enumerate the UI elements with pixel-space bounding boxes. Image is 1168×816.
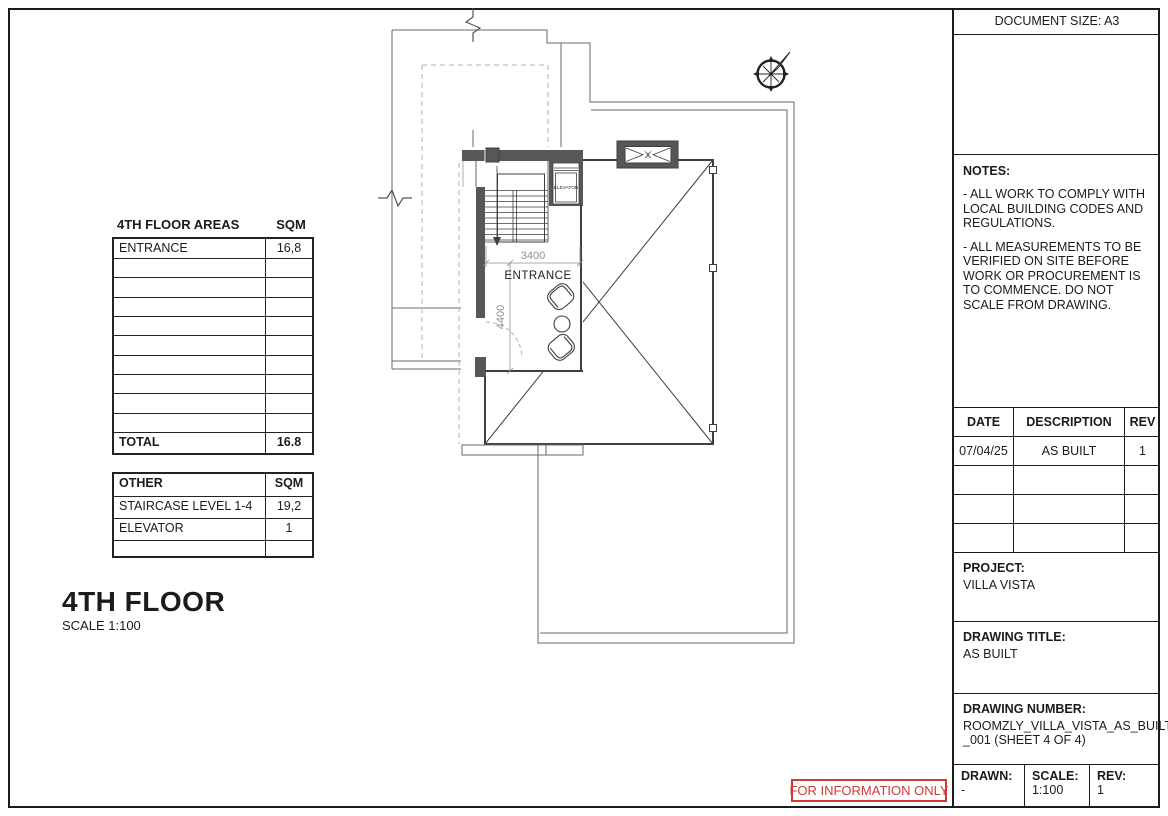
north-arrow-icon: [753, 52, 790, 92]
logo-box: [954, 35, 1160, 155]
note-item: - ALL WORK TO COMPLY WITH LOCAL BUILDING…: [963, 187, 1151, 231]
table-empty-row: [114, 540, 312, 556]
table-empty-row: [114, 258, 312, 277]
project-label: PROJECT:: [963, 561, 1151, 575]
table-header-row: OTHER SQM: [114, 474, 312, 496]
side-table: [554, 316, 570, 332]
note-item: - ALL MEASUREMENTS TO BE VERIFIED ON SIT…: [963, 240, 1151, 313]
svg-text:3400: 3400: [521, 250, 545, 262]
rev-header-description: DESCRIPTION: [1014, 408, 1125, 437]
areas-table: ENTRANCE 16,8 TOTAL 16.8: [112, 237, 314, 455]
svg-text:4400: 4400: [495, 305, 507, 329]
table-empty-row: [114, 335, 312, 354]
drawing-title-label: DRAWING TITLE:: [963, 630, 1151, 644]
table-row: ENTRANCE 16,8: [114, 239, 312, 258]
info-stamp: FOR INFORMATION ONLY: [791, 779, 947, 802]
rev-date: 07/04/25: [954, 437, 1014, 466]
table-empty-cell: [954, 466, 1014, 495]
table-empty-row: [114, 355, 312, 374]
rev-header-rev: REV: [1125, 408, 1160, 437]
table-row: ELEVATOR 1: [114, 518, 312, 540]
roof-window-icon: [617, 141, 678, 168]
title-footer: DRAWN: - SCALE: 1:100 REV: 1: [954, 765, 1160, 808]
rev-cell: REV: 1: [1090, 765, 1160, 808]
rev-description: AS BUILT: [1014, 437, 1125, 466]
table-empty-row: [114, 413, 312, 432]
door-pier: [475, 357, 486, 377]
page-title: 4TH FLOOR: [62, 586, 225, 618]
roof-outline: [392, 30, 794, 643]
notes-section: NOTES: - ALL WORK TO COMPLY WITH LOCAL B…: [954, 155, 1160, 408]
scale-cell: SCALE: 1:100: [1025, 765, 1090, 808]
areas-table-unit: SQM: [268, 217, 314, 235]
table-empty-row: [114, 374, 312, 393]
table-empty-row: [114, 393, 312, 412]
table-empty-row: [114, 316, 312, 335]
drawing-number-value: ROOMZLY_VILLA_VISTA_AS_BUILT _001 (SHEET…: [963, 719, 1151, 747]
document-size-label: DOCUMENT SIZE: A3: [954, 8, 1160, 35]
drawing-number-label: DRAWING NUMBER:: [963, 702, 1151, 716]
ledge: [462, 445, 583, 455]
table-empty-row: [114, 277, 312, 296]
revision-table: DATE DESCRIPTION REV 07/04/25 AS BUILT 1: [954, 408, 1160, 553]
table-empty-row: [114, 297, 312, 316]
rev-rev: 1: [1125, 437, 1160, 466]
notes-title: NOTES:: [963, 164, 1151, 178]
areas-table-title: 4TH FLOOR AREAS: [112, 217, 268, 235]
elevator: ELEVATOR: [549, 158, 583, 206]
project-section: PROJECT: VILLA VISTA: [954, 553, 1160, 622]
project-name: VILLA VISTA: [963, 578, 1151, 592]
elevator-label: ELEVATOR: [554, 185, 579, 191]
areas-table-header: 4TH FLOOR AREAS SQM: [112, 217, 314, 235]
drawn-cell: DRAWN: -: [954, 765, 1025, 808]
drawing-number-section: DRAWING NUMBER: ROOMZLY_VILLA_VISTA_AS_B…: [954, 694, 1160, 765]
table-empty-cell: [954, 495, 1014, 524]
page-scale: SCALE 1:100: [62, 618, 141, 633]
other-table: OTHER SQM STAIRCASE LEVEL 1-4 19,2 ELEVA…: [112, 472, 314, 558]
table-total-row: TOTAL 16.8: [114, 432, 312, 453]
drawing-title-value: AS BUILT: [963, 647, 1151, 661]
table-row: STAIRCASE LEVEL 1-4 19,2: [114, 496, 312, 518]
entrance-label: ENTRANCE: [504, 270, 571, 282]
drawing-title-section: DRAWING TITLE: AS BUILT: [954, 622, 1160, 694]
title-block: DOCUMENT SIZE: A3 NOTES: - ALL WORK TO C…: [952, 8, 1160, 808]
table-empty-cell: [954, 524, 1014, 553]
rev-header-date: DATE: [954, 408, 1014, 437]
